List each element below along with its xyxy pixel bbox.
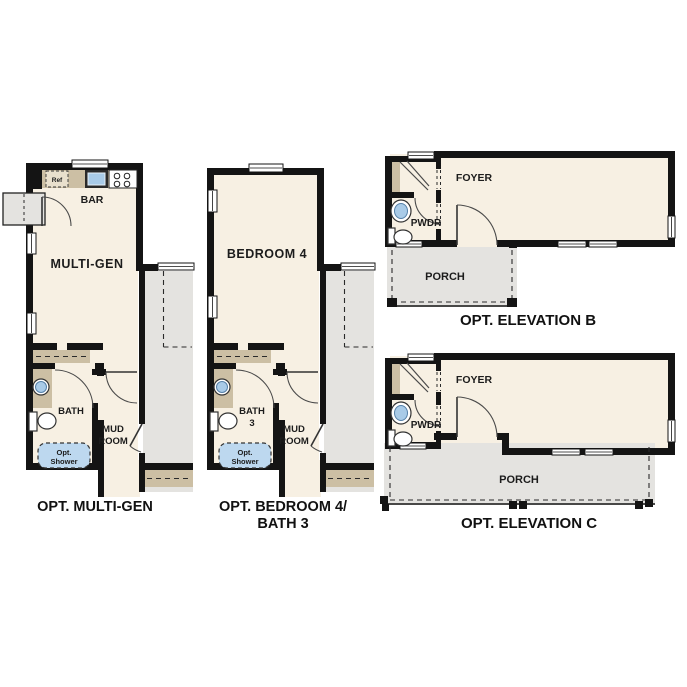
mudroom-label-2: ROOM [279,436,309,447]
closet-wall [391,362,400,396]
bedroom4-caption-line2: BATH 3 [257,516,308,532]
bedroom4-plan: Opt. Shower BEDROOM 4 BATH 3 MUD ROOM OP… [207,164,375,532]
mudroom-label-2: ROOM [98,436,128,447]
elevation-b-caption: OPT. ELEVATION B [460,312,596,329]
opt-shower: Opt. Shower [219,443,271,468]
bedroom4-caption-line1: OPT. BEDROOM 4/ [219,499,347,515]
adjacent-house-area [324,271,374,492]
elevation-b-plan: FOYER PWDR PORCH OPT. ELEVATION B [385,151,675,329]
mudroom-label-1: MUD [102,424,124,435]
bath3-sink-icon [214,379,230,395]
pwdr-label: PWDR [411,420,442,431]
closet-wall [391,160,400,194]
multigen-caption: OPT. MULTI-GEN [37,499,153,515]
ref-label: Ref [52,177,63,184]
shower-label-2: Shower [50,457,77,466]
toilet-icon [210,412,237,431]
floorplan-canvas: Ref [0,0,687,687]
shower-label-1: Opt. [238,448,253,457]
bar-label: BAR [81,194,104,206]
bedroom4-room-label: BEDROOM 4 [227,247,307,261]
shower-label-2: Shower [231,457,258,466]
floorplan-sheet: Ref [0,0,687,687]
pwdr-label: PWDR [411,218,442,229]
bath-sink-icon [33,379,49,395]
front-door-gap [457,240,497,247]
multigen-room-label: MULTI-GEN [50,257,123,271]
front-door-gap [457,433,497,440]
entry-landing [3,193,45,225]
elevation-c-caption: OPT. ELEVATION C [461,515,597,532]
pwdr-sink-icon [391,200,411,222]
porch-label: PORCH [499,474,539,486]
pwdr-sink-icon [391,402,411,424]
mudroom-label-1: MUD [283,424,305,435]
mudroom-floor [100,460,140,497]
adjacent-house-area [143,271,193,492]
bath3-label-1: BATH [239,406,265,417]
refrigerator: Ref [46,171,68,187]
elevation-c-plan: FOYER PWDR PORCH OPT. ELEVATION C [380,353,675,532]
multigen-plan: Ref [3,160,194,515]
shower-label-1: Opt. [57,448,72,457]
bath3-label-2: 3 [249,418,254,429]
toilet-icon [29,412,56,431]
foyer-label: FOYER [456,172,493,184]
porch-label: PORCH [425,271,465,283]
mudroom-floor [281,460,321,497]
cooktop-icon [109,170,137,188]
bath-label: BATH [58,406,84,417]
bar-sink-icon [85,170,108,188]
foyer-label: FOYER [456,374,493,386]
opt-shower: Opt. Shower [38,443,90,468]
